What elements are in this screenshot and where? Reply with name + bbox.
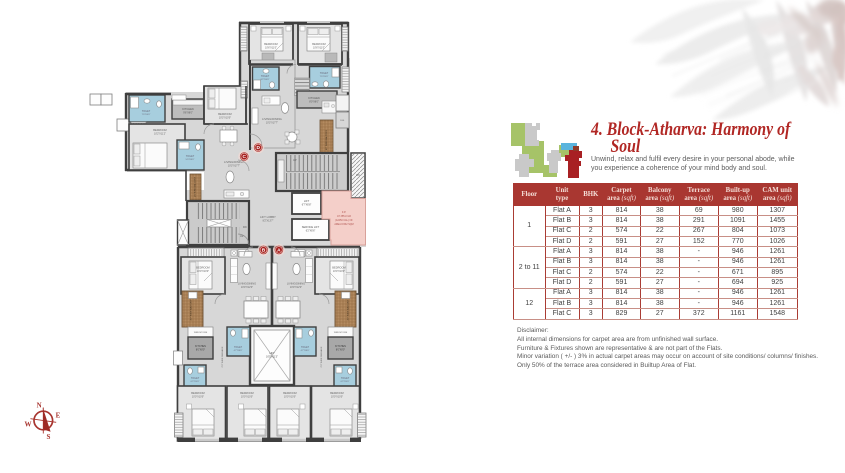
- svg-text:BEDROOM: BEDROOM: [264, 42, 277, 46]
- svg-text:10'3"X17'7": 10'3"X17'7": [228, 165, 240, 168]
- svg-text:TOILET: TOILET: [186, 155, 195, 158]
- svg-text:4'0" WIDE BALCONY: 4'0" WIDE BALCONY: [190, 299, 193, 321]
- svg-text:10'0"X10'0": 10'0"X10'0": [197, 270, 209, 273]
- svg-text:KITCHEN: KITCHEN: [335, 345, 346, 348]
- svg-text:10'0"X10'0": 10'0"X10'0": [333, 270, 345, 273]
- svg-text:5'0"X8'0": 5'0"X8'0": [186, 159, 195, 161]
- svg-text:10'3"X17'7": 10'3"X17'7": [266, 122, 278, 125]
- svg-text:LIFT: LIFT: [304, 199, 310, 203]
- svg-text:C: C: [242, 154, 246, 160]
- svg-text:LIFT LOBBY: LIFT LOBBY: [260, 215, 276, 219]
- svg-text:BEDROOM: BEDROOM: [218, 112, 231, 116]
- svg-text:6'2"X6'6": 6'2"X6'6": [306, 230, 316, 233]
- svg-text:10'6"X11'0": 10'6"X11'0": [265, 46, 277, 49]
- svg-text:AT 3551 FLR: AT 3551 FLR: [337, 215, 351, 218]
- svg-text:7'0"X4'0": 7'0"X4'0": [142, 114, 151, 116]
- svg-text:TOILET: TOILET: [191, 377, 200, 380]
- svg-text:LIVING/DINING: LIVING/DINING: [287, 282, 305, 286]
- svg-text:LIFT: LIFT: [269, 351, 275, 355]
- svg-text:S: S: [46, 433, 50, 441]
- svg-text:2'0" WIDE PASSAGE: 2'0" WIDE PASSAGE: [320, 346, 323, 367]
- svg-text:WRD/STORE: WRD/STORE: [334, 332, 348, 334]
- svg-text:LIVING/DINING: LIVING/DINING: [262, 117, 282, 121]
- svg-text:W: W: [25, 421, 32, 429]
- svg-text:D.B.: D.B.: [340, 120, 345, 122]
- svg-text:WRD/STORE: WRD/STORE: [194, 332, 208, 334]
- svg-text:(42450 CAL) OF: (42450 CAL) OF: [335, 219, 353, 222]
- svg-text:B: B: [262, 248, 266, 254]
- svg-text:TOILET: TOILET: [261, 75, 270, 78]
- svg-text:16'5"X11'3": 16'5"X11'3": [266, 356, 278, 359]
- svg-text:BEDROOM: BEDROOM: [332, 266, 345, 270]
- svg-text:10'0"X12'0": 10'0"X12'0": [241, 286, 253, 289]
- svg-text:9'6"X8'0": 9'6"X8'0": [183, 111, 193, 114]
- svg-text:10'0"X10'0": 10'0"X10'0": [241, 395, 253, 398]
- svg-text:4'7"X8'0": 4'7"X8'0": [301, 350, 310, 352]
- svg-text:6'2"X5'0": 6'2"X5'0": [191, 381, 200, 383]
- svg-text:8'0"X8'0": 8'0"X8'0": [336, 349, 345, 351]
- svg-text:AREA=1532 SQM: AREA=1532 SQM: [334, 223, 353, 226]
- svg-text:BEDROOM: BEDROOM: [191, 391, 204, 395]
- svg-text:10'0"X12'0": 10'0"X12'0": [290, 286, 302, 289]
- svg-text:BEDROOM: BEDROOM: [240, 391, 253, 395]
- svg-text:D: D: [256, 145, 260, 151]
- svg-text:10'3"X10'0": 10'3"X10'0": [219, 116, 231, 119]
- svg-text:UP: UP: [293, 158, 297, 162]
- svg-text:4'7"X8'0": 4'7"X8'0": [234, 350, 243, 352]
- svg-text:10'6"X11'0": 10'6"X11'0": [313, 46, 325, 49]
- svg-text:10'0"X10'0": 10'0"X10'0": [284, 395, 296, 398]
- svg-text:SERVICE LIFT: SERVICE LIFT: [302, 225, 320, 229]
- svg-text:LIV WRD BALCONY: LIV WRD BALCONY: [194, 176, 197, 197]
- svg-text:TOILET: TOILET: [320, 72, 329, 75]
- svg-text:BEDROOM: BEDROOM: [196, 266, 209, 270]
- svg-text:4'0" WIDE BALCONY: 4'0" WIDE BALCONY: [347, 299, 350, 321]
- svg-text:7'0"X5'0": 7'0"X5'0": [320, 76, 329, 78]
- svg-text:DN: DN: [243, 226, 247, 229]
- svg-text:TOILET: TOILET: [142, 110, 151, 113]
- svg-text:8'2"X13'7": 8'2"X13'7": [263, 220, 274, 223]
- svg-text:KITCHEN: KITCHEN: [308, 96, 320, 100]
- svg-text:8'0"X8'0": 8'0"X8'0": [309, 100, 319, 103]
- svg-text:N: N: [37, 402, 42, 410]
- svg-text:KIT WRD BALCONY: KIT WRD BALCONY: [325, 129, 328, 150]
- svg-text:10'2"X11'2": 10'2"X11'2": [154, 132, 166, 135]
- svg-text:BEDROOM: BEDROOM: [283, 391, 296, 395]
- svg-text:TOILET: TOILET: [341, 377, 350, 380]
- svg-text:KITCHEN: KITCHEN: [195, 345, 206, 348]
- svg-text:10'0"X10'0": 10'0"X10'0": [192, 395, 204, 398]
- svg-text:F.P.: F.P.: [342, 210, 346, 214]
- svg-text:LIVING/DINING: LIVING/DINING: [238, 282, 256, 286]
- svg-text:TOILET: TOILET: [301, 347, 310, 349]
- svg-text:BEDROOM: BEDROOM: [330, 391, 343, 395]
- svg-text:8'0"X8'0": 8'0"X8'0": [196, 349, 205, 351]
- svg-text:A: A: [277, 248, 281, 254]
- svg-text:6'7"X6'8": 6'7"X6'8": [302, 204, 312, 207]
- svg-text:BEDROOM: BEDROOM: [153, 128, 166, 132]
- svg-text:10'0"X10'0": 10'0"X10'0": [331, 395, 343, 398]
- svg-text:DN: DN: [356, 174, 360, 177]
- svg-text:8'2"X6'0": 8'2"X6'0": [261, 79, 270, 81]
- svg-text:TOILET: TOILET: [234, 347, 243, 349]
- svg-text:BEDROOM: BEDROOM: [312, 42, 325, 46]
- svg-text:2'0" WIDE PASSAGE: 2'0" WIDE PASSAGE: [221, 346, 224, 367]
- svg-text:E: E: [56, 411, 61, 419]
- svg-text:6'2"X5'0": 6'2"X5'0": [341, 381, 350, 383]
- svg-text:KITCHEN: KITCHEN: [182, 107, 194, 111]
